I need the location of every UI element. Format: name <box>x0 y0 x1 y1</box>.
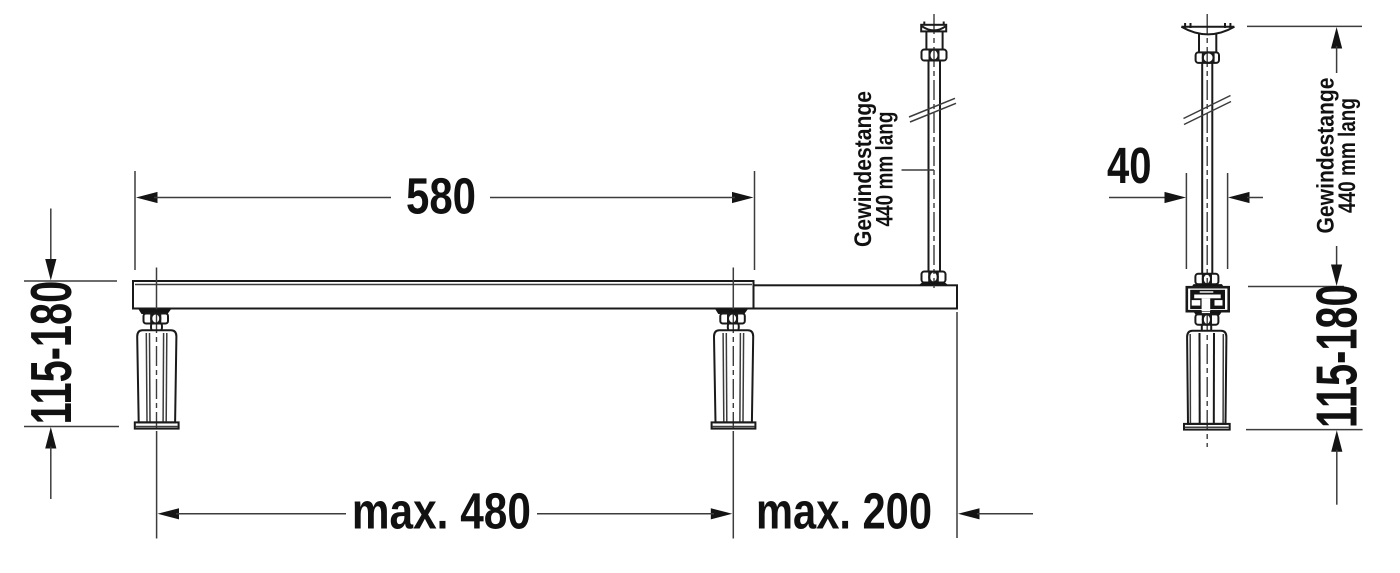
svg-text:440 mm lang: 440 mm lang <box>872 112 899 227</box>
svg-text:115-180: 115-180 <box>19 281 84 425</box>
svg-text:40: 40 <box>1107 137 1152 194</box>
svg-text:max. 200: max. 200 <box>756 483 932 540</box>
svg-text:580: 580 <box>406 168 476 225</box>
svg-text:115-180: 115-180 <box>1304 284 1369 428</box>
svg-text:max. 480: max. 480 <box>352 483 531 540</box>
svg-text:440 mm lang: 440 mm lang <box>1334 98 1361 213</box>
